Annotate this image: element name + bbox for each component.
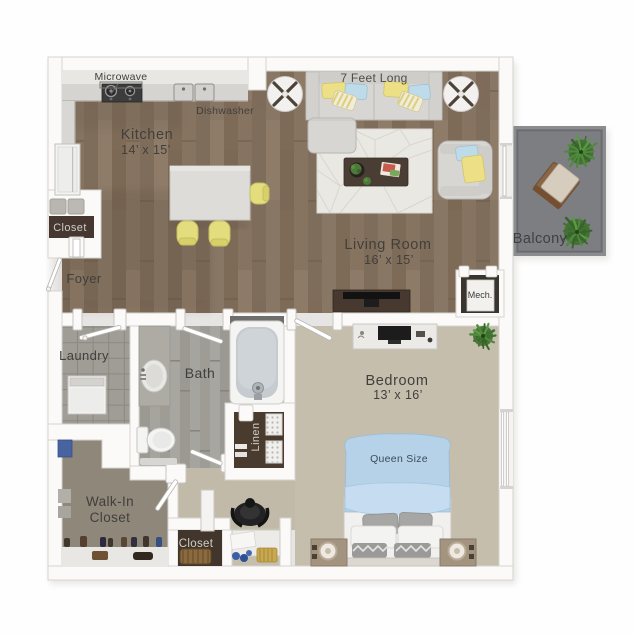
svg-text:Balcony: Balcony — [513, 231, 568, 247]
svg-text:Closet: Closet — [90, 510, 131, 525]
svg-text:Living Room: Living Room — [344, 237, 431, 253]
svg-text:14’ x 15’: 14’ x 15’ — [121, 143, 171, 157]
svg-text:16’ x 15’: 16’ x 15’ — [364, 253, 414, 267]
svg-text:13’ x 16’: 13’ x 16’ — [373, 388, 423, 402]
svg-text:Bath: Bath — [185, 365, 215, 381]
svg-text:Kitchen: Kitchen — [121, 127, 174, 143]
svg-text:7 Feet Long: 7 Feet Long — [340, 71, 407, 85]
svg-text:Foyer: Foyer — [66, 271, 102, 286]
svg-text:Bedroom: Bedroom — [365, 373, 428, 389]
svg-text:Queen Size: Queen Size — [370, 453, 428, 465]
svg-text:Dishwasher: Dishwasher — [196, 105, 254, 117]
svg-text:Closet: Closet — [53, 222, 87, 234]
svg-text:Microwave: Microwave — [95, 71, 148, 83]
svg-text:Walk-In: Walk-In — [86, 494, 134, 509]
svg-text:Laundry: Laundry — [59, 348, 109, 363]
svg-text:Linen: Linen — [250, 423, 262, 452]
svg-text:Closet: Closet — [179, 538, 214, 550]
svg-text:Mech.: Mech. — [468, 290, 493, 300]
